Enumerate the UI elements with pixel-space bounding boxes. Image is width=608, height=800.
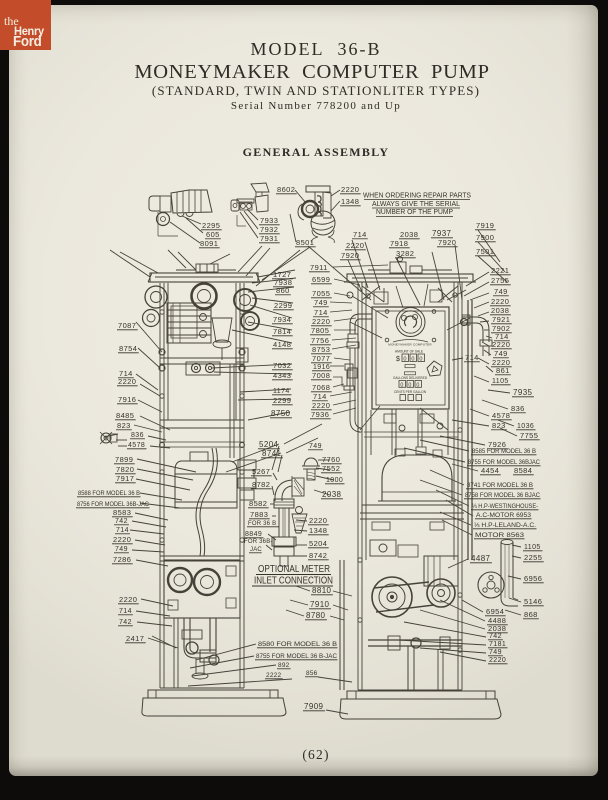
svg-text:⅓ H.P-LELAND-A.C.: ⅓ H.P-LELAND-A.C.	[474, 522, 536, 529]
svg-text:8742: 8742	[309, 551, 327, 560]
svg-text:2755: 2755	[491, 276, 509, 285]
svg-text:0: 0	[416, 383, 419, 389]
svg-text:7933: 7933	[260, 216, 278, 225]
svg-text:742: 742	[119, 619, 132, 626]
svg-text:7916: 7916	[118, 395, 136, 404]
svg-text:7934: 7934	[273, 315, 291, 324]
svg-text:742: 742	[489, 633, 502, 640]
svg-text:8849: 8849	[245, 531, 262, 538]
svg-text:7936: 7936	[311, 410, 329, 419]
svg-text:0: 0	[419, 356, 422, 362]
svg-text:2220: 2220	[492, 340, 510, 349]
svg-text:1000: 1000	[326, 477, 343, 484]
svg-text:7931: 7931	[260, 234, 278, 243]
svg-text:892: 892	[278, 662, 290, 669]
svg-text:7919: 7919	[476, 221, 494, 230]
svg-text:605: 605	[206, 230, 220, 239]
svg-text:2299: 2299	[273, 396, 291, 405]
svg-text:4454: 4454	[481, 466, 499, 475]
svg-text:7900: 7900	[476, 233, 494, 242]
svg-text:0: 0	[411, 356, 414, 362]
svg-text:7755: 7755	[520, 431, 538, 440]
svg-text:FOR 36B-: FOR 36B-	[244, 539, 273, 545]
svg-text:8754: 8754	[119, 344, 137, 353]
svg-text:8758 FOR MODEL 36 BJAC: 8758 FOR MODEL 36 BJAC	[465, 492, 540, 499]
svg-text:860: 860	[276, 286, 290, 295]
svg-text:4578: 4578	[128, 442, 145, 449]
svg-text:4148: 4148	[273, 340, 291, 349]
svg-text:8091: 8091	[200, 239, 218, 248]
svg-text:2220: 2220	[312, 317, 330, 326]
svg-text:GALLONS DELIVERED: GALLONS DELIVERED	[393, 376, 428, 380]
svg-text:7932: 7932	[260, 225, 278, 234]
svg-text:749: 749	[494, 287, 508, 296]
svg-text:856: 856	[306, 670, 318, 677]
svg-text:2038: 2038	[400, 230, 418, 239]
svg-text:1036: 1036	[517, 423, 534, 430]
svg-text:2220: 2220	[346, 241, 364, 250]
svg-text:6954: 6954	[486, 607, 504, 616]
svg-text:8741 FOR MODEL 36 B: 8741 FOR MODEL 36 B	[467, 482, 533, 489]
svg-text:7935: 7935	[513, 388, 533, 397]
svg-text:⅓ H.P-WESTINGHOUSE-: ⅓ H.P-WESTINGHOUSE-	[472, 503, 538, 510]
svg-text:8753: 8753	[312, 345, 330, 354]
svg-text:749: 749	[489, 649, 502, 656]
svg-text:8755 FOR MODEL 36 B-JAC: 8755 FOR MODEL 36 B-JAC	[256, 653, 338, 660]
svg-text:714: 714	[314, 308, 328, 317]
svg-text:7814: 7814	[273, 327, 291, 336]
svg-text:714: 714	[353, 230, 367, 239]
svg-text:7918: 7918	[390, 239, 408, 248]
svg-text:8485: 8485	[116, 411, 134, 420]
svg-text:4578: 4578	[492, 411, 510, 420]
svg-text:0: 0	[403, 356, 406, 362]
svg-text:823: 823	[117, 421, 131, 430]
svg-text:8756 FOR MODEL 36B-JAC: 8756 FOR MODEL 36B-JAC	[77, 501, 149, 508]
svg-text:7920: 7920	[438, 238, 456, 247]
svg-text:1174: 1174	[273, 388, 290, 395]
svg-text:2220: 2220	[309, 516, 327, 525]
svg-text:2222: 2222	[266, 672, 281, 679]
svg-text:836: 836	[511, 404, 525, 413]
svg-text:6956: 6956	[524, 574, 542, 583]
svg-text:7899: 7899	[115, 455, 133, 464]
svg-text:836: 836	[131, 432, 144, 439]
svg-text:7008: 7008	[312, 371, 330, 380]
svg-text:6599: 6599	[312, 275, 330, 284]
svg-text:MOTOR 8563: MOTOR 8563	[475, 532, 525, 539]
svg-text:8780: 8780	[306, 611, 326, 620]
svg-text:8755 FOR MODEL 36BJAC: 8755 FOR MODEL 36BJAC	[468, 459, 540, 466]
svg-text:5146: 5146	[524, 597, 542, 606]
svg-text:OPTIONAL METER: OPTIONAL METER	[258, 564, 330, 575]
svg-text:714: 714	[465, 353, 479, 362]
svg-text:2220: 2220	[312, 401, 330, 410]
svg-text:7911: 7911	[310, 263, 328, 272]
svg-text:JAC: JAC	[250, 547, 262, 553]
svg-text:7068: 7068	[312, 383, 330, 392]
svg-text:7032: 7032	[273, 361, 291, 370]
svg-text:7760: 7760	[322, 455, 340, 464]
svg-text:1105: 1105	[524, 544, 541, 551]
svg-text:2221: 2221	[491, 266, 509, 275]
svg-text:1916: 1916	[313, 364, 330, 371]
svg-text:749: 749	[314, 298, 328, 307]
svg-text:INLET CONNECTION: INLET CONNECTION	[254, 576, 333, 587]
svg-text:8501: 8501	[296, 238, 314, 247]
svg-text:7805: 7805	[311, 326, 329, 335]
svg-text:7921: 7921	[492, 315, 510, 324]
svg-text:7937: 7937	[432, 229, 452, 238]
svg-text:742: 742	[115, 518, 128, 525]
svg-text:5204: 5204	[259, 440, 279, 449]
svg-text:2220: 2220	[113, 535, 131, 544]
svg-text:8582: 8582	[249, 499, 267, 508]
svg-text:7909: 7909	[304, 702, 324, 711]
svg-text:749: 749	[309, 443, 322, 450]
svg-text:868: 868	[524, 610, 538, 619]
svg-text:7820: 7820	[116, 465, 134, 474]
svg-text:2038: 2038	[488, 624, 506, 633]
svg-text:2299: 2299	[274, 301, 292, 310]
svg-text:7181: 7181	[489, 641, 506, 648]
svg-text:749: 749	[115, 546, 128, 553]
svg-text:7883: 7883	[250, 510, 268, 519]
svg-text:1348: 1348	[341, 197, 359, 206]
svg-text:714: 714	[116, 527, 129, 534]
svg-text:2295: 2295	[202, 221, 220, 230]
svg-text:7055: 7055	[312, 289, 330, 298]
svg-text:AMOUNT OF SALE: AMOUNT OF SALE	[395, 350, 423, 354]
svg-text:2220: 2220	[119, 595, 137, 604]
svg-text:8602: 8602	[277, 185, 295, 194]
svg-text:8810: 8810	[312, 586, 332, 595]
svg-text:2255: 2255	[524, 553, 542, 562]
svg-text:2038: 2038	[322, 490, 342, 499]
svg-text:714: 714	[119, 608, 132, 615]
svg-text:CENTS PER GALLON: CENTS PER GALLON	[394, 390, 427, 394]
svg-text:2220: 2220	[491, 297, 509, 306]
svg-text:8583: 8583	[113, 508, 131, 517]
svg-text:7286: 7286	[113, 555, 131, 564]
svg-text:823: 823	[492, 421, 506, 430]
svg-text:7920: 7920	[341, 251, 359, 260]
svg-text:FOR 36 B: FOR 36 B	[248, 521, 276, 527]
svg-text:7501: 7501	[476, 247, 494, 256]
svg-text:7756: 7756	[311, 336, 329, 345]
svg-text:NUMBER OF THE PUMP: NUMBER OF THE PUMP	[376, 207, 453, 216]
svg-text:MONEYMAKER COMPUTER: MONEYMAKER COMPUTER	[388, 343, 432, 347]
svg-text:8584: 8584	[514, 466, 532, 475]
svg-text:8741: 8741	[262, 449, 282, 458]
svg-text:2220: 2220	[489, 657, 506, 664]
svg-text:A.C-MOTOR 6953: A.C-MOTOR 6953	[476, 512, 532, 519]
svg-text:7552: 7552	[322, 464, 340, 473]
svg-text:714: 714	[313, 392, 327, 401]
svg-text:4343: 4343	[273, 371, 291, 380]
svg-text:1105: 1105	[492, 378, 509, 385]
svg-text:2038: 2038	[491, 306, 509, 315]
svg-text:4487: 4487	[471, 554, 491, 563]
svg-text:2220: 2220	[118, 377, 136, 386]
svg-text:2417: 2417	[126, 634, 144, 643]
svg-text:$: $	[396, 356, 400, 363]
svg-text:7917: 7917	[116, 474, 134, 483]
svg-text:0: 0	[400, 383, 403, 389]
svg-text:8580 FOR MODEL 36 B: 8580 FOR MODEL 36 B	[258, 641, 337, 648]
svg-text:7910: 7910	[310, 600, 330, 609]
svg-text:2220: 2220	[341, 185, 359, 194]
svg-text:0: 0	[408, 383, 411, 389]
svg-text:5267: 5267	[252, 467, 270, 476]
svg-text:7087: 7087	[118, 321, 136, 330]
svg-text:3282: 3282	[396, 249, 414, 258]
svg-text:1348: 1348	[309, 526, 327, 535]
svg-text:8588 FOR MODEL 36 B: 8588 FOR MODEL 36 B	[78, 490, 140, 497]
svg-text:749: 749	[494, 349, 508, 358]
svg-text:5204: 5204	[309, 539, 327, 548]
svg-text:8750: 8750	[271, 409, 291, 418]
svg-text:8782: 8782	[252, 480, 270, 489]
svg-text:7077: 7077	[312, 354, 330, 363]
svg-text:8585 FOR MODEL 36 B: 8585 FOR MODEL 36 B	[472, 448, 536, 455]
svg-text:861: 861	[496, 366, 510, 375]
